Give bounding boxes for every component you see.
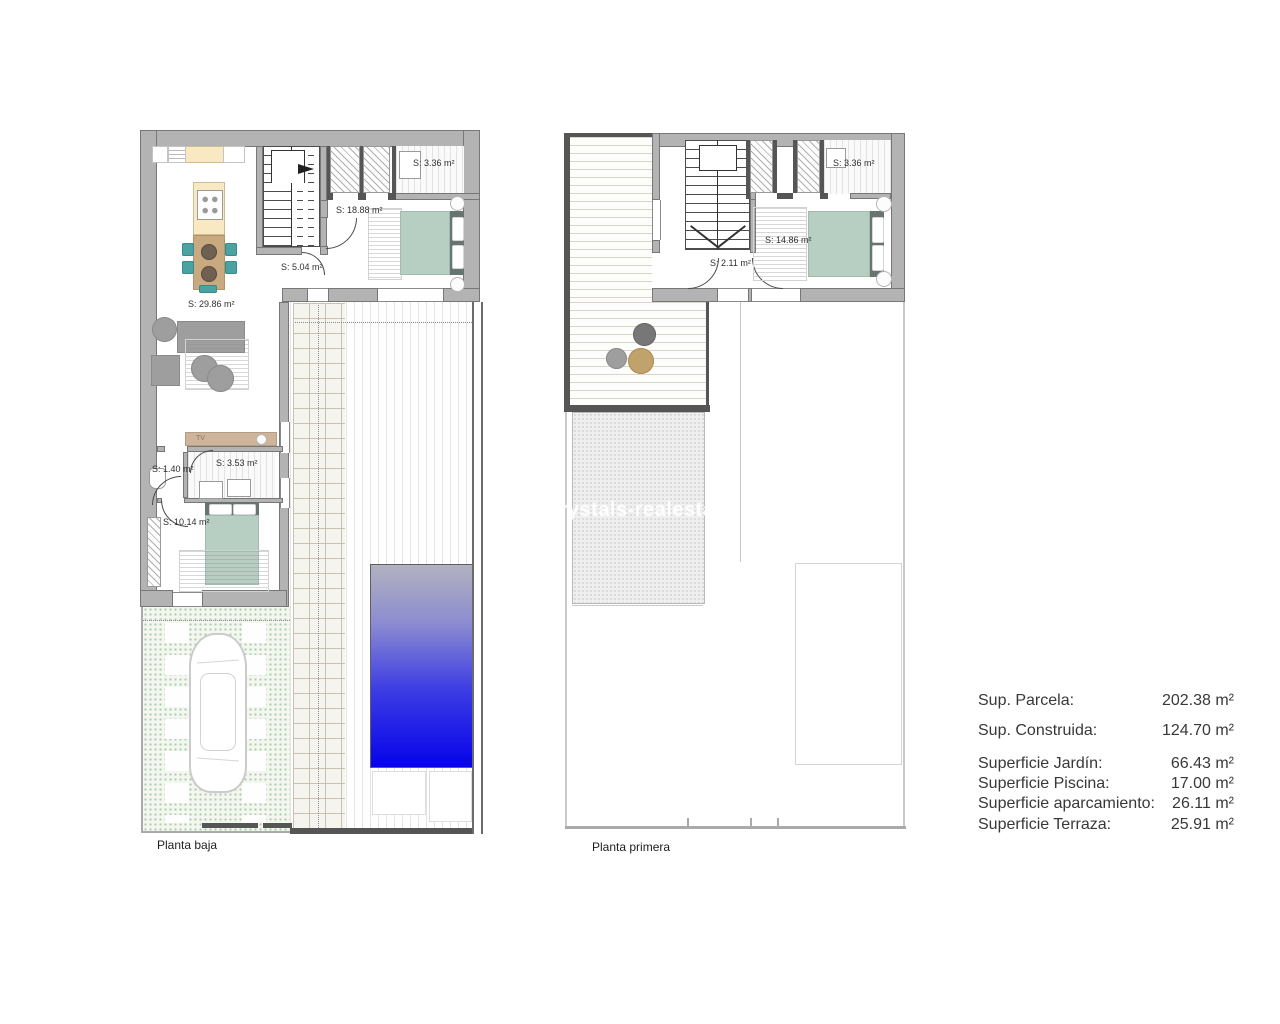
room-label-hall: S: 2.11 m²	[710, 258, 751, 268]
wall	[746, 140, 750, 193]
roof-edge-line	[572, 605, 703, 606]
wall	[891, 133, 905, 300]
wall	[800, 288, 905, 302]
summary-label: Sup. Parcela:	[978, 692, 1074, 710]
wall	[652, 240, 660, 253]
nightstand	[876, 196, 892, 212]
summary-value: 26.11 m²	[1172, 795, 1234, 813]
summary-value: 202.38 m²	[1162, 692, 1234, 710]
plan-caption-first: Planta primera	[592, 840, 670, 854]
closet	[797, 140, 820, 193]
plot-boundary-right	[903, 300, 905, 826]
summary-label: Superficie aparcamiento:	[978, 795, 1155, 813]
terrace-chair	[628, 348, 654, 374]
terrace-west-wall	[564, 133, 570, 412]
summary-row: Superficie Jardín: 66.43 m²	[978, 755, 1234, 773]
summary-label: Superficie Terraza:	[978, 816, 1111, 834]
terrace-chair	[633, 323, 656, 346]
room-label-bedroom: S: 14.86 m²	[765, 235, 812, 245]
window	[652, 200, 661, 240]
summary-row: Superficie aparcamiento: 26.11 m²	[978, 795, 1234, 813]
nightstand	[876, 271, 892, 287]
summary-row: Superficie Terraza: 25.91 m²	[978, 816, 1234, 834]
boundary-tick	[687, 818, 689, 826]
wall	[652, 288, 718, 302]
terrace-south-wall	[564, 405, 710, 412]
plot-boundary-bottom	[565, 826, 906, 829]
summary-row: Sup. Construida: 124.70 m²	[978, 722, 1234, 740]
area-summary: Sup. Parcela: 202.38 m² Sup. Construida:…	[978, 692, 1234, 842]
bed-mattress	[808, 211, 870, 277]
window	[718, 288, 748, 302]
wall	[652, 133, 660, 200]
wall	[793, 140, 797, 193]
closet	[750, 140, 773, 193]
room-label-bath: S: 3.36 m²	[833, 158, 875, 168]
summary-label: Superficie Jardín:	[978, 755, 1103, 773]
summary-label: Sup. Construida:	[978, 722, 1097, 740]
terrace-chair	[606, 348, 627, 369]
terrace-east-wall	[706, 300, 709, 405]
summary-value: 124.70 m²	[1162, 722, 1234, 740]
wall	[773, 140, 777, 193]
summary-value: 66.43 m²	[1171, 755, 1234, 773]
summary-label: Superficie Piscina:	[978, 775, 1110, 793]
wall	[820, 193, 828, 199]
pool-void-outline	[795, 563, 902, 765]
boundary-tick	[777, 818, 779, 826]
summary-value: 25.91 m²	[1171, 816, 1234, 834]
floorplan-sheet: TV S: 29.86 m² S: 5.04 m² S: 18.88 m² S:…	[0, 0, 1280, 1024]
watermark: crystals-realestate	[548, 499, 733, 522]
boundary-tick	[750, 818, 752, 826]
summary-value: 17.00 m²	[1171, 775, 1234, 793]
plot-boundary-left	[565, 410, 567, 828]
summary-row: Superficie Piscina: 17.00 m²	[978, 775, 1234, 793]
pillow	[872, 245, 884, 271]
stair-landing	[699, 145, 737, 171]
terrace-north-wall	[564, 133, 655, 137]
wall	[777, 193, 793, 199]
pillow	[872, 217, 884, 243]
summary-row: Sup. Parcela: 202.38 m²	[978, 692, 1234, 710]
window	[752, 288, 800, 302]
lower-roof-edge	[740, 302, 741, 562]
